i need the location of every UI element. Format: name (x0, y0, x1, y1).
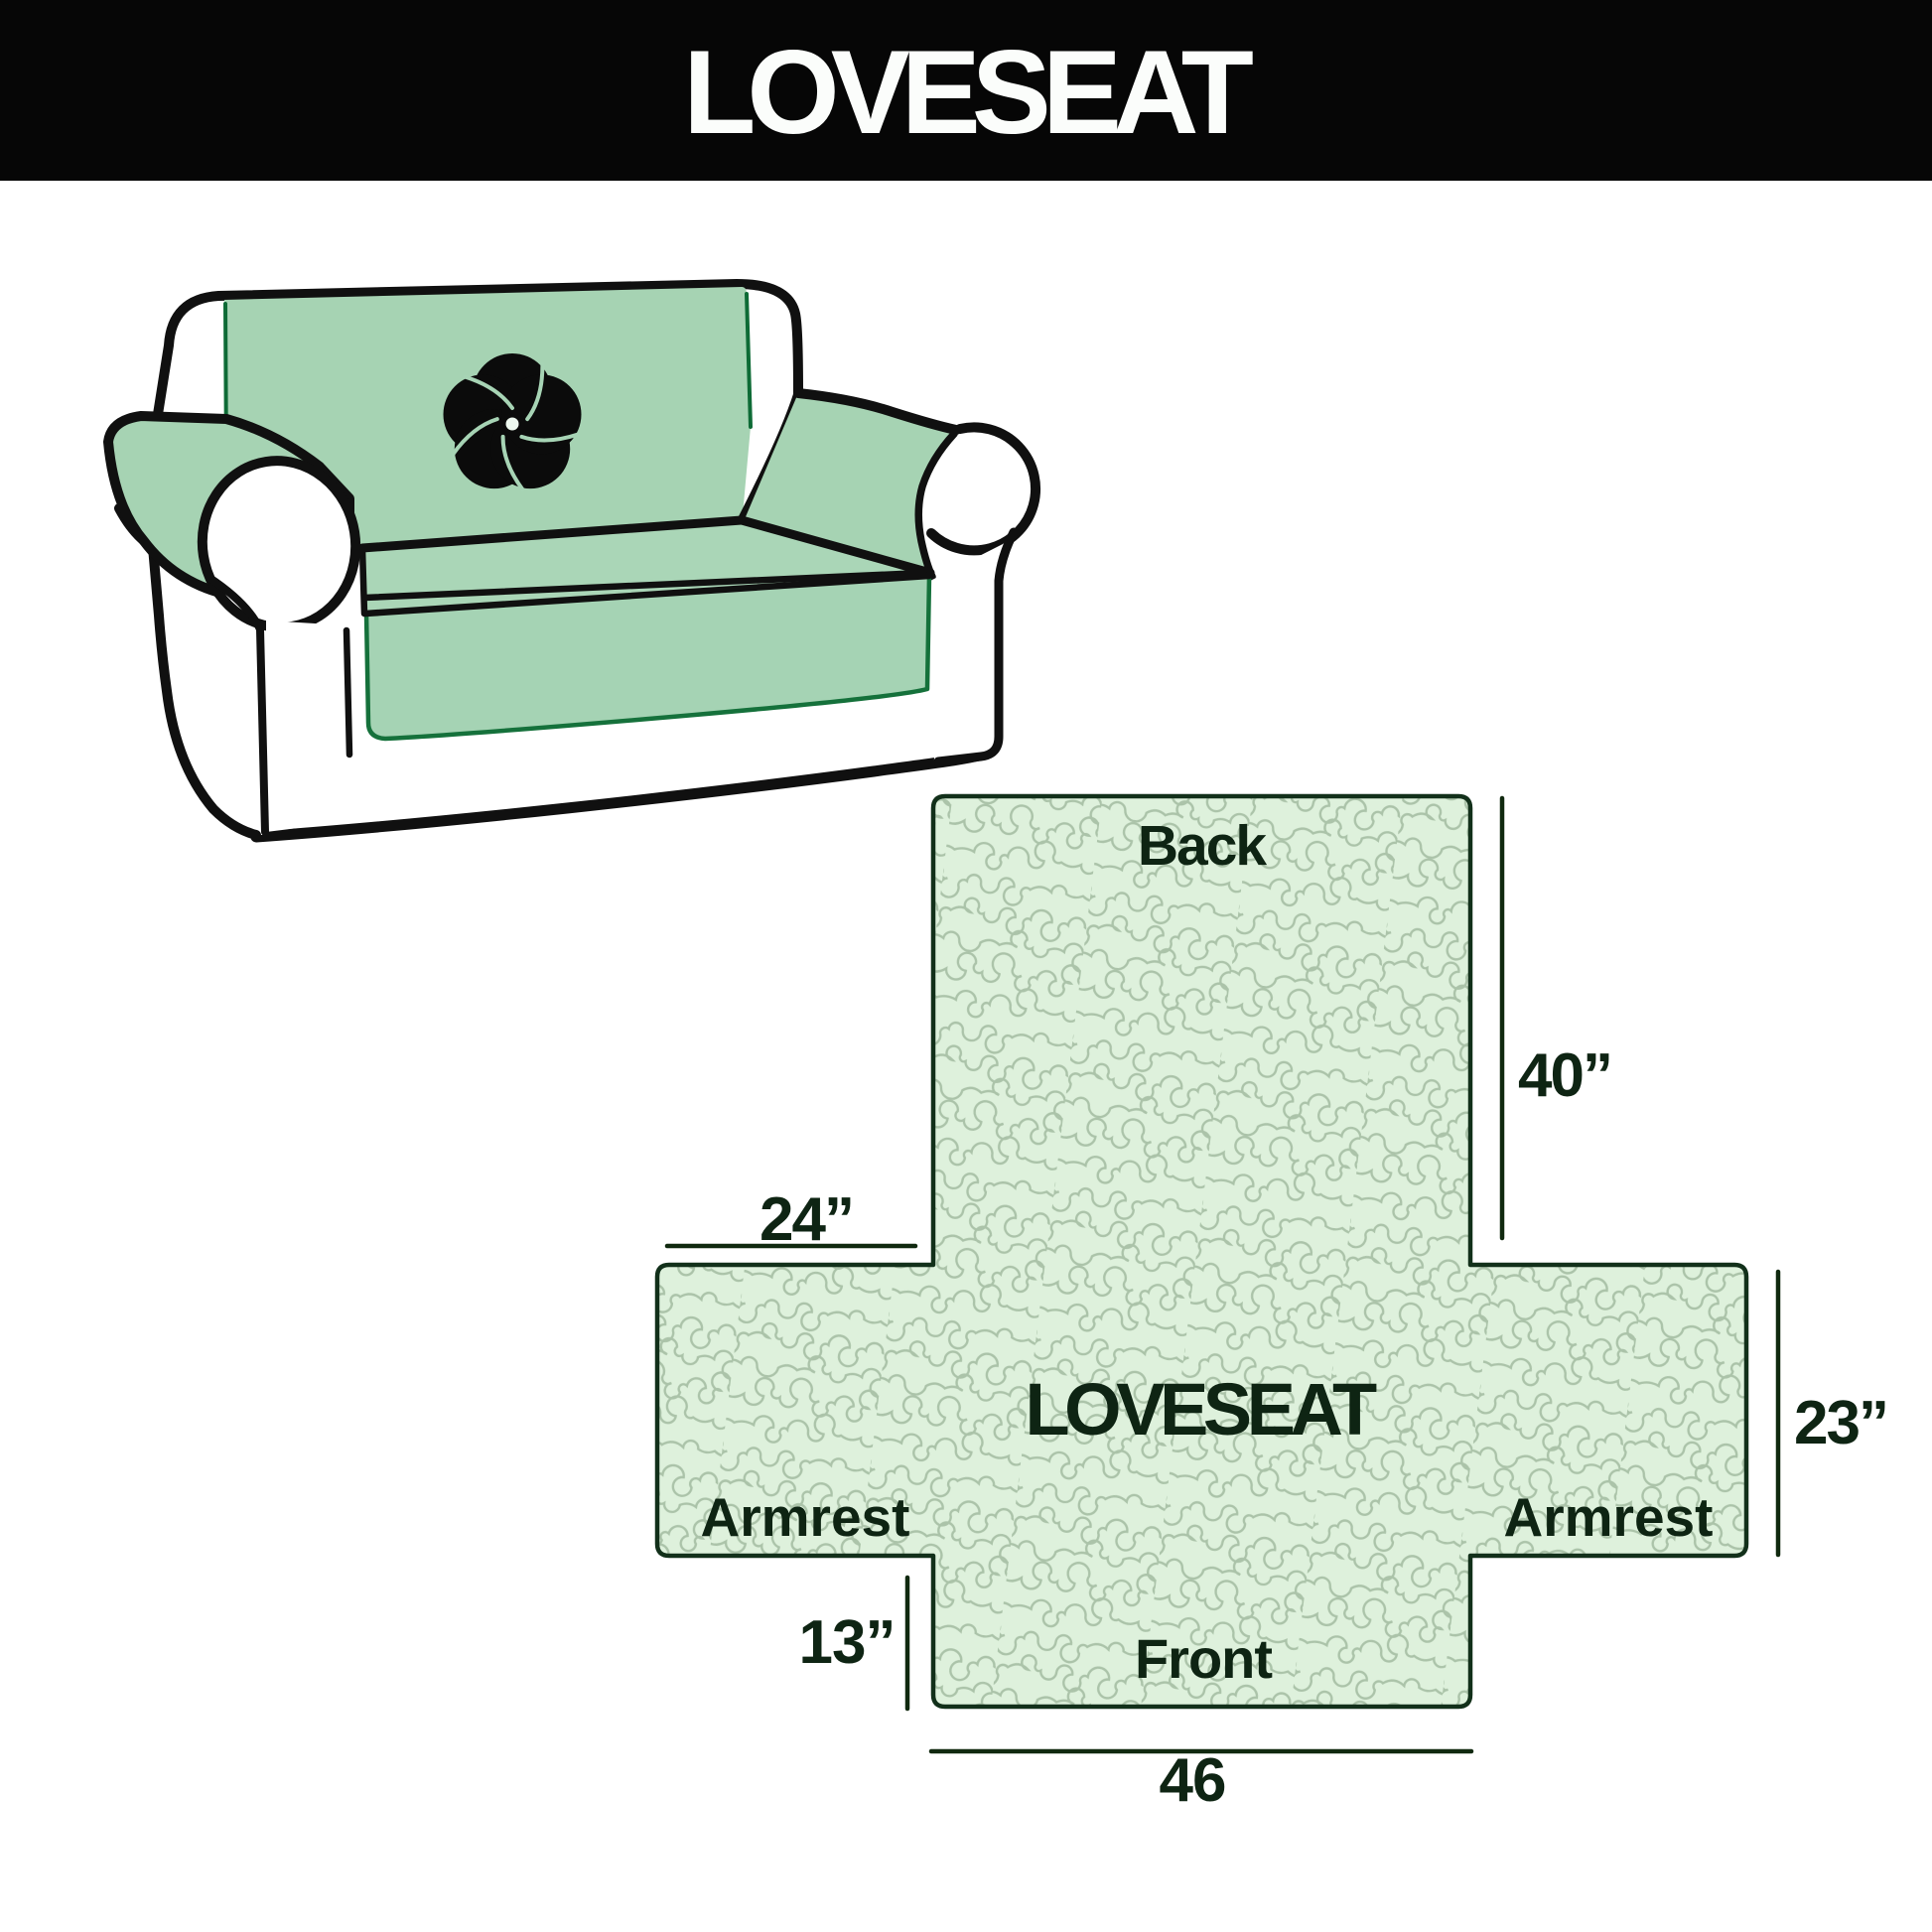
svg-text:Armrest: Armrest (1504, 1486, 1714, 1548)
svg-text:Front: Front (1135, 1627, 1272, 1690)
svg-text:Back: Back (1138, 814, 1268, 878)
svg-text:13”: 13” (799, 1608, 896, 1677)
svg-text:46: 46 (1160, 1746, 1226, 1815)
svg-text:LOVESEAT: LOVESEAT (683, 26, 1254, 159)
svg-text:24”: 24” (759, 1185, 853, 1254)
svg-text:23”: 23” (1794, 1389, 1887, 1457)
svg-text:LOVESEAT: LOVESEAT (1025, 1368, 1377, 1450)
svg-text:40”: 40” (1518, 1041, 1611, 1110)
svg-text:Armrest: Armrest (701, 1486, 910, 1548)
